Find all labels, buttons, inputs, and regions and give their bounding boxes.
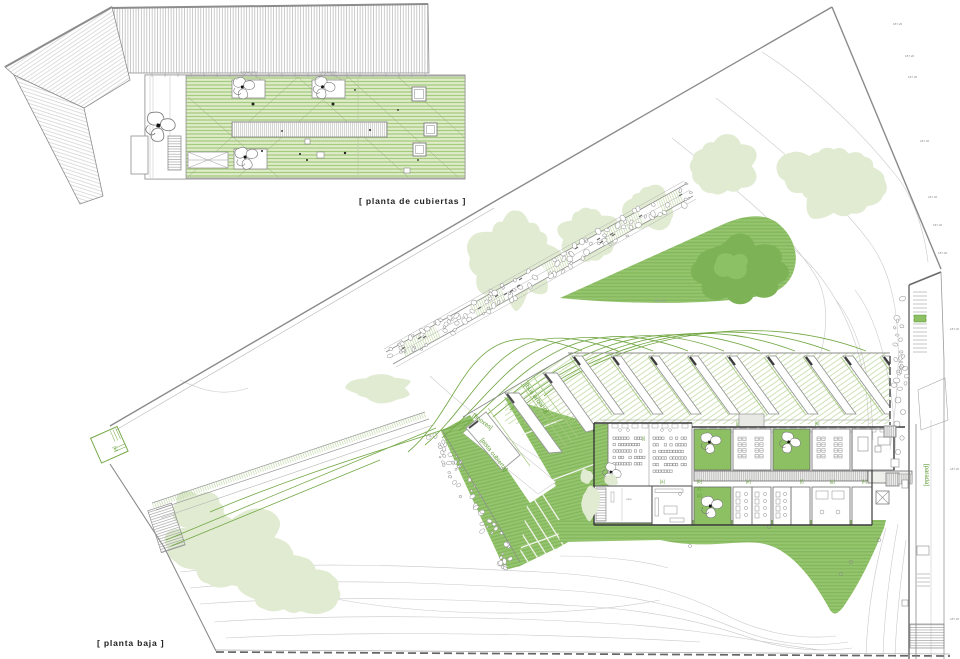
svg-text:[h]: [h] <box>862 479 867 484</box>
svg-text:187.20: 187.20 <box>905 54 915 58</box>
svg-text:[e]: [e] <box>746 479 751 484</box>
svg-text:187.20: 187.20 <box>893 22 903 26</box>
svg-text:187.20: 187.20 <box>938 251 948 255</box>
svg-text:[g]: [g] <box>830 479 835 484</box>
svg-text:[ planta de cubiertas ]: [ planta de cubiertas ] <box>359 196 466 206</box>
svg-text:187.20: 187.20 <box>920 139 930 143</box>
svg-text:[parada]: [parada] <box>923 464 929 486</box>
svg-text:[c]: [c] <box>697 486 701 491</box>
svg-text:187.20: 187.20 <box>933 223 943 227</box>
svg-text:[i]: [i] <box>642 436 645 441</box>
svg-text:187.20: 187.20 <box>950 617 960 621</box>
svg-text:[k]: [k] <box>815 421 819 426</box>
svg-text:857 m2: 857 m2 <box>655 299 666 303</box>
svg-text:187.20: 187.20 <box>908 75 918 79</box>
svg-text:187.20: 187.20 <box>950 467 960 471</box>
svg-text:187.20: 187.20 <box>950 327 960 331</box>
svg-text:[ planta baja ]: [ planta baja ] <box>97 638 164 648</box>
svg-text:187.20: 187.20 <box>928 195 938 199</box>
svg-text:[b]: [b] <box>697 479 702 484</box>
svg-text:[a]: [a] <box>660 479 665 484</box>
svg-text:[f]: [f] <box>800 479 804 484</box>
svg-text:[d]: [d] <box>697 493 702 498</box>
svg-text:sala: sala <box>626 497 632 501</box>
svg-text:[j]: [j] <box>736 421 739 426</box>
